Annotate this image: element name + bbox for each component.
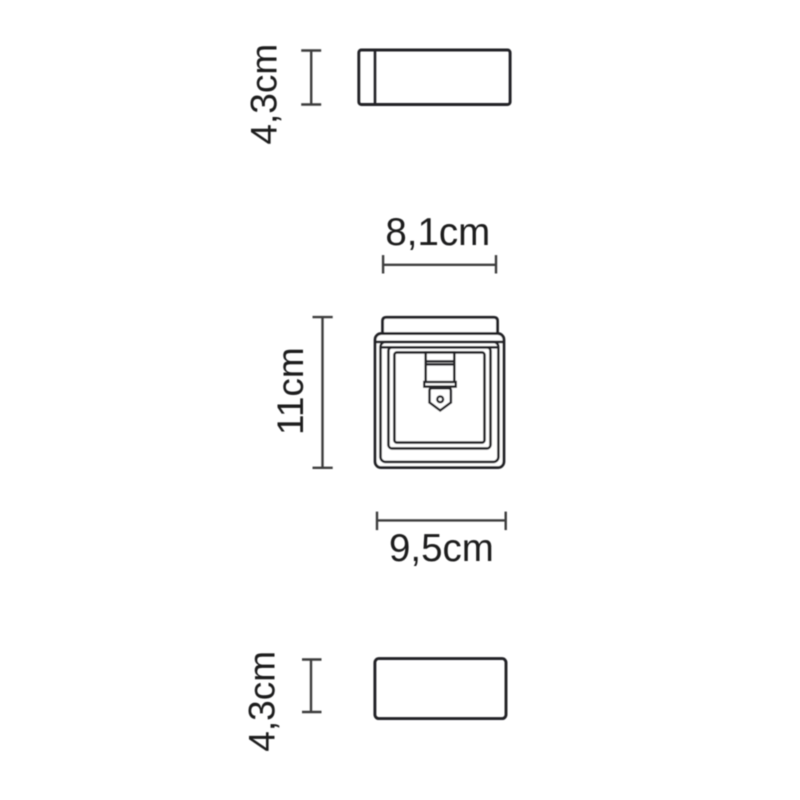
svg-text:4,3cm: 4,3cm xyxy=(242,651,283,752)
svg-text:9,5cm: 9,5cm xyxy=(389,527,494,570)
svg-text:11cm: 11cm xyxy=(270,347,311,435)
svg-text:4,3cm: 4,3cm xyxy=(244,44,285,145)
svg-text:8,1cm: 8,1cm xyxy=(385,211,490,254)
